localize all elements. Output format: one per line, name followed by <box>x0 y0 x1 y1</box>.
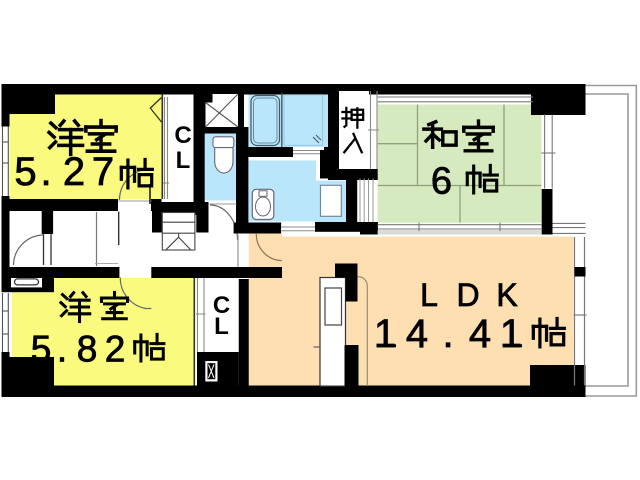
svg-text:7: 7 <box>92 150 114 194</box>
svg-text:8: 8 <box>77 329 98 370</box>
svg-text:1: 1 <box>500 312 522 356</box>
svg-text:5: 5 <box>14 150 36 194</box>
svg-text:L: L <box>214 313 229 340</box>
svg-text:2: 2 <box>105 329 126 370</box>
svg-text:6: 6 <box>431 160 452 202</box>
svg-text:.: . <box>40 150 51 194</box>
svg-text:5: 5 <box>31 329 52 370</box>
svg-text:.: . <box>442 312 453 356</box>
svg-text:L: L <box>420 277 438 313</box>
svg-text:1: 1 <box>374 312 396 356</box>
svg-text:4: 4 <box>406 312 428 356</box>
svg-text:C: C <box>174 122 191 149</box>
svg-text:K: K <box>496 277 517 313</box>
svg-text:2: 2 <box>63 150 85 194</box>
svg-text:D: D <box>456 277 479 313</box>
svg-text:.: . <box>57 329 67 370</box>
svg-text:L: L <box>176 147 191 174</box>
svg-text:4: 4 <box>469 312 491 356</box>
